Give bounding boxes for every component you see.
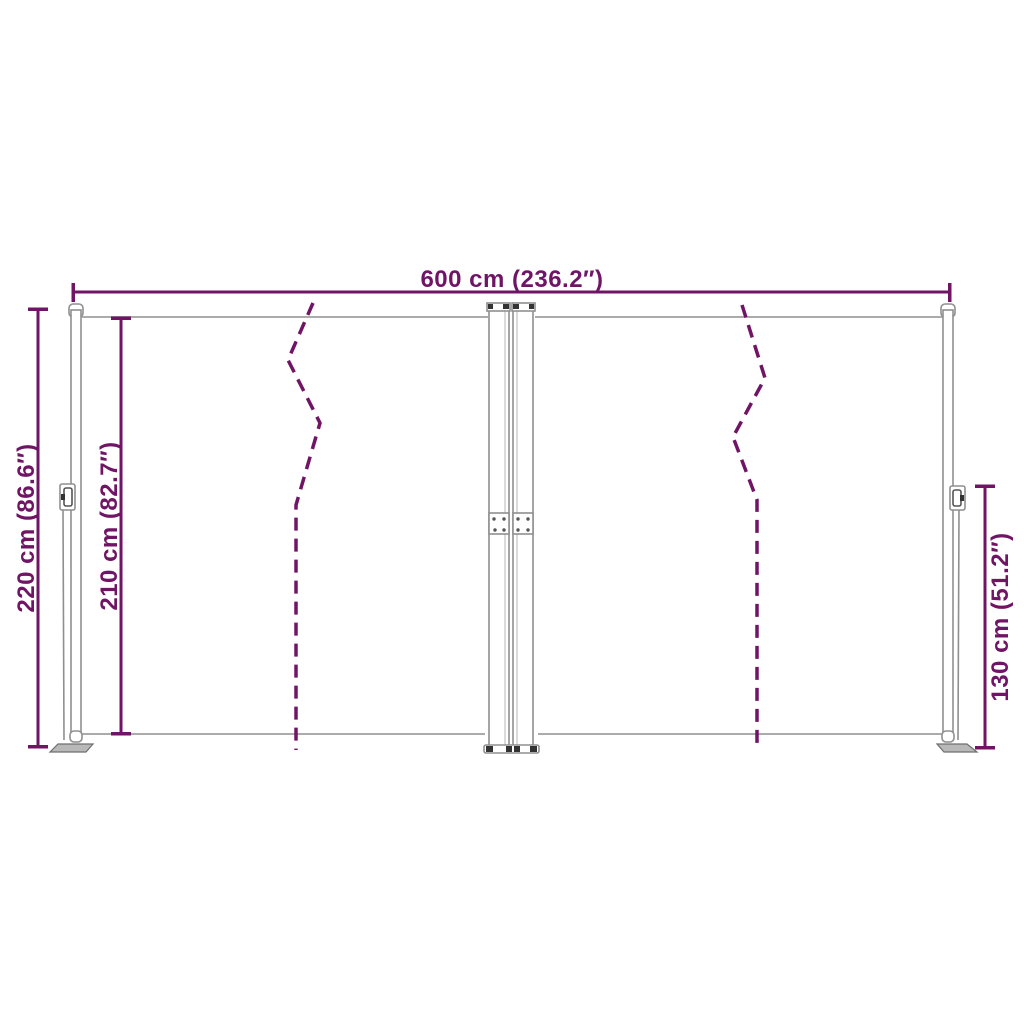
dimension-end-tick (28, 308, 48, 312)
cassette-right-wall-bracket (513, 513, 533, 534)
bracket-screw-dot (502, 517, 505, 520)
base-foot-mark (486, 746, 493, 752)
base-foot-mark (530, 746, 537, 752)
right-post-track (958, 510, 959, 740)
dimension-label-height-right: 130 cm (51.2″) (987, 532, 1014, 701)
dimension-height-right: 130 cm (51.2″) (975, 485, 1014, 750)
dimension-height-total: 220 cm (86.6″) (13, 308, 48, 749)
bracket-screw-dot (502, 528, 505, 531)
left-post-track (63, 510, 64, 740)
base-foot-mark (514, 746, 520, 752)
base-foot-mark (506, 746, 512, 752)
dimension-height-fabric: 210 cm (82.7″) (96, 317, 131, 736)
bracket-screw-dot (516, 517, 519, 520)
bracket-screw-dot (526, 528, 529, 531)
dimension-end-tick (28, 745, 48, 749)
dimension-label-height-total: 220 cm (86.6″) (13, 443, 40, 612)
bracket-screw-dot (492, 517, 495, 520)
dimension-end-tick (948, 283, 952, 302)
dimension-end-tick (975, 746, 995, 750)
right-post-base-plate (937, 744, 977, 752)
right-post-handle (953, 490, 961, 506)
dimension-width-total: 600 cm (236.2″) (72, 266, 952, 302)
bracket-screw-dot (516, 528, 519, 531)
bracket-screw-dot (526, 517, 529, 520)
left-post-handle-latch (61, 494, 65, 500)
dimension-end-tick (975, 485, 995, 489)
dimension-end-tick (111, 732, 131, 736)
left-post-foot-cap (70, 731, 82, 742)
right-post-tube (943, 310, 953, 738)
left-post-handle (64, 488, 72, 506)
cassette-cap-screw (513, 304, 519, 309)
fabric-fold-line-left (288, 303, 320, 750)
cassette-cap-screw (529, 304, 534, 309)
right-post-handle-latch (960, 495, 964, 501)
right-post-foot-cap (942, 731, 954, 742)
diagram-canvas: 600 cm (236.2″) 220 cm (86.6″) 210 cm (8… (0, 0, 1024, 1024)
dimension-end-tick (72, 283, 76, 302)
dimension-label-width-total: 600 cm (236.2″) (420, 266, 603, 293)
cassette-left-wall-bracket (489, 513, 509, 534)
dimension-label-height-fabric: 210 cm (82.7″) (96, 441, 123, 610)
dimension-end-tick (111, 317, 131, 321)
left-post-tube (71, 310, 81, 738)
cassette-cap-screw (488, 304, 493, 309)
left-post-base-plate (50, 744, 93, 752)
center-cassette-pair (484, 303, 539, 753)
fabric-fold-line-right (733, 305, 765, 750)
awning-dimension-diagram: 600 cm (236.2″) 220 cm (86.6″) 210 cm (8… (0, 0, 1024, 1024)
left-post (50, 304, 93, 752)
cassette-cap-screw (503, 304, 509, 309)
right-post (937, 304, 977, 752)
bracket-screw-dot (493, 528, 496, 531)
